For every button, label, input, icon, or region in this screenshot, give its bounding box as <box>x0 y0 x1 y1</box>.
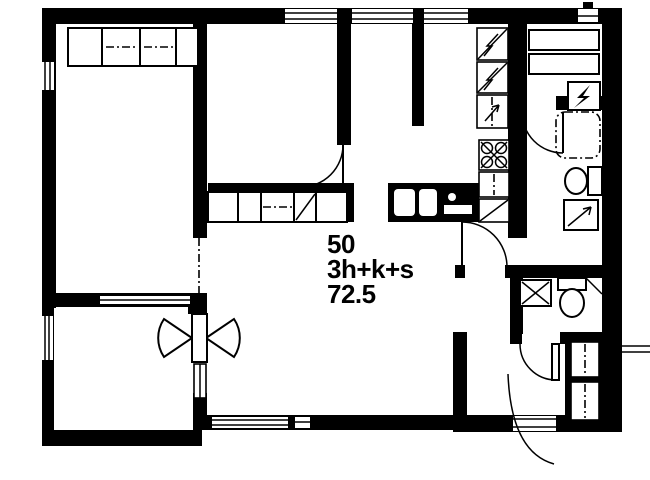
balcony-sidelight-window <box>194 364 206 398</box>
bathroom-toilet <box>565 167 602 195</box>
floor-plan-drawing: 50 3h+k+s 72.5 <box>0 0 650 480</box>
window-bedroom1-balcony <box>100 296 190 304</box>
freezer-cabinet <box>477 62 508 93</box>
wall-wc-bottom-left <box>510 332 522 344</box>
oven-cabinet <box>477 95 508 128</box>
closet-row-top-bar <box>208 183 352 192</box>
window-bedroom2-top <box>285 9 337 23</box>
wall-entry-left <box>453 332 467 417</box>
window-living-top <box>352 9 413 23</box>
bedroom1-wardrobes <box>68 28 198 66</box>
apartment-label: 50 3h+k+s 72.5 <box>327 229 414 309</box>
wall-kitchen-bath <box>508 24 527 238</box>
structure-stub-right <box>620 346 650 352</box>
sauna-door <box>522 112 563 153</box>
stove <box>479 140 509 170</box>
wc-toilet <box>558 278 586 317</box>
window-balcony-left <box>42 316 53 360</box>
wall-bath-bottom-right <box>505 265 602 278</box>
wc-door <box>520 344 559 380</box>
bedroom2-door <box>301 145 343 187</box>
window-kitchen-top <box>424 9 468 23</box>
wall-right <box>602 8 622 432</box>
bathroom-door <box>462 222 507 267</box>
base-cabinet-corner <box>479 199 509 222</box>
wall-junction-balcony <box>188 295 207 314</box>
floor-plan-page: 50 3h+k+s 72.5 <box>0 0 650 480</box>
wall-bottom-balcony <box>42 430 202 446</box>
window-bedroom1-left <box>42 62 54 90</box>
wall-bath-bottom-left <box>455 265 465 278</box>
bedroom2-closet-row <box>208 192 347 222</box>
base-cabinet <box>479 172 509 197</box>
unit-area-label: 72.5 <box>327 279 376 309</box>
wall-kitchen-left <box>412 24 424 126</box>
vent-slot-top-right <box>578 2 598 22</box>
wc-room <box>520 278 602 317</box>
balcony-double-door <box>158 314 240 398</box>
kitchen-cabinet-column <box>477 28 509 222</box>
window-living-bottom <box>212 417 310 428</box>
sauna-bench-lower <box>529 54 599 74</box>
fridge-cabinet <box>477 28 508 60</box>
kitchen-counter-sink <box>388 183 479 222</box>
wc-sink <box>520 280 551 306</box>
wall-bedroom2-right <box>337 24 351 145</box>
front-door <box>508 374 556 464</box>
interior-walls <box>55 22 604 426</box>
washing-machine <box>564 200 598 230</box>
wc-corner-shelf <box>586 278 602 294</box>
wall-left-upper <box>42 8 56 308</box>
closet-row-right-stub <box>347 183 354 222</box>
sauna-bench-upper <box>529 30 599 50</box>
sauna-heater <box>568 82 600 110</box>
